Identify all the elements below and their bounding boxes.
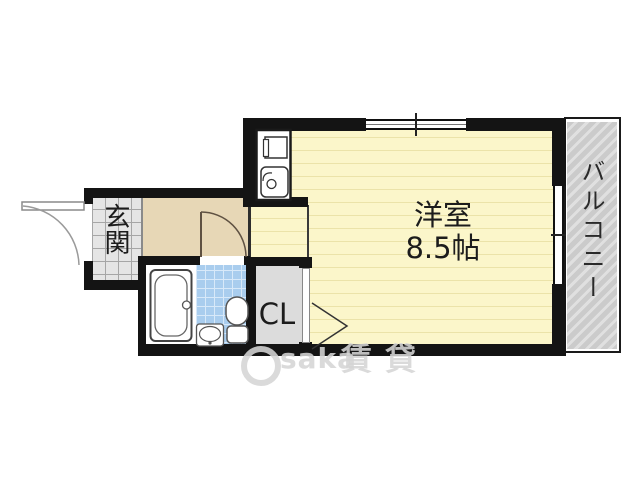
room-label: 洋室 8.5帖 xyxy=(377,199,509,265)
wall-top-left xyxy=(243,118,366,131)
window-top-mullion xyxy=(415,113,417,136)
entry-door-leaf xyxy=(22,202,84,210)
wall-closet-right-top xyxy=(299,257,312,268)
wall-hall-bath xyxy=(140,256,202,265)
wall-bath-left xyxy=(138,256,146,350)
wall-entrance-bottom xyxy=(84,280,146,290)
room-western-alcove xyxy=(248,205,309,259)
room-name-label: 洋室 xyxy=(377,199,509,232)
room-size-label: 8.5帖 xyxy=(377,232,509,265)
entrance-label: 玄関 xyxy=(99,203,131,267)
entry-door-swing-arc xyxy=(23,206,79,265)
wall-entry-jamb-top xyxy=(84,188,93,204)
wall-top-right xyxy=(466,118,566,131)
wall-hall-top xyxy=(84,188,248,198)
watermark-kanji: 賃貸 xyxy=(341,334,429,379)
hallway-floor xyxy=(140,195,250,260)
balcony-label: バルコニー xyxy=(579,159,609,339)
watermark-circle-icon xyxy=(241,346,281,386)
window-right-mullion xyxy=(551,234,566,236)
washroom-floor xyxy=(196,260,250,350)
floor-plan: 玄関 洋室 8.5帖 CL バルコニー saka 賃貸 xyxy=(0,0,640,480)
bathroom-floor xyxy=(144,260,198,350)
hall-door-opening xyxy=(200,256,244,265)
wall-right-upper xyxy=(552,118,566,186)
closet-door-panel xyxy=(302,268,310,343)
wall-under-kitchen xyxy=(243,197,308,207)
closet-label: CL xyxy=(252,297,302,331)
